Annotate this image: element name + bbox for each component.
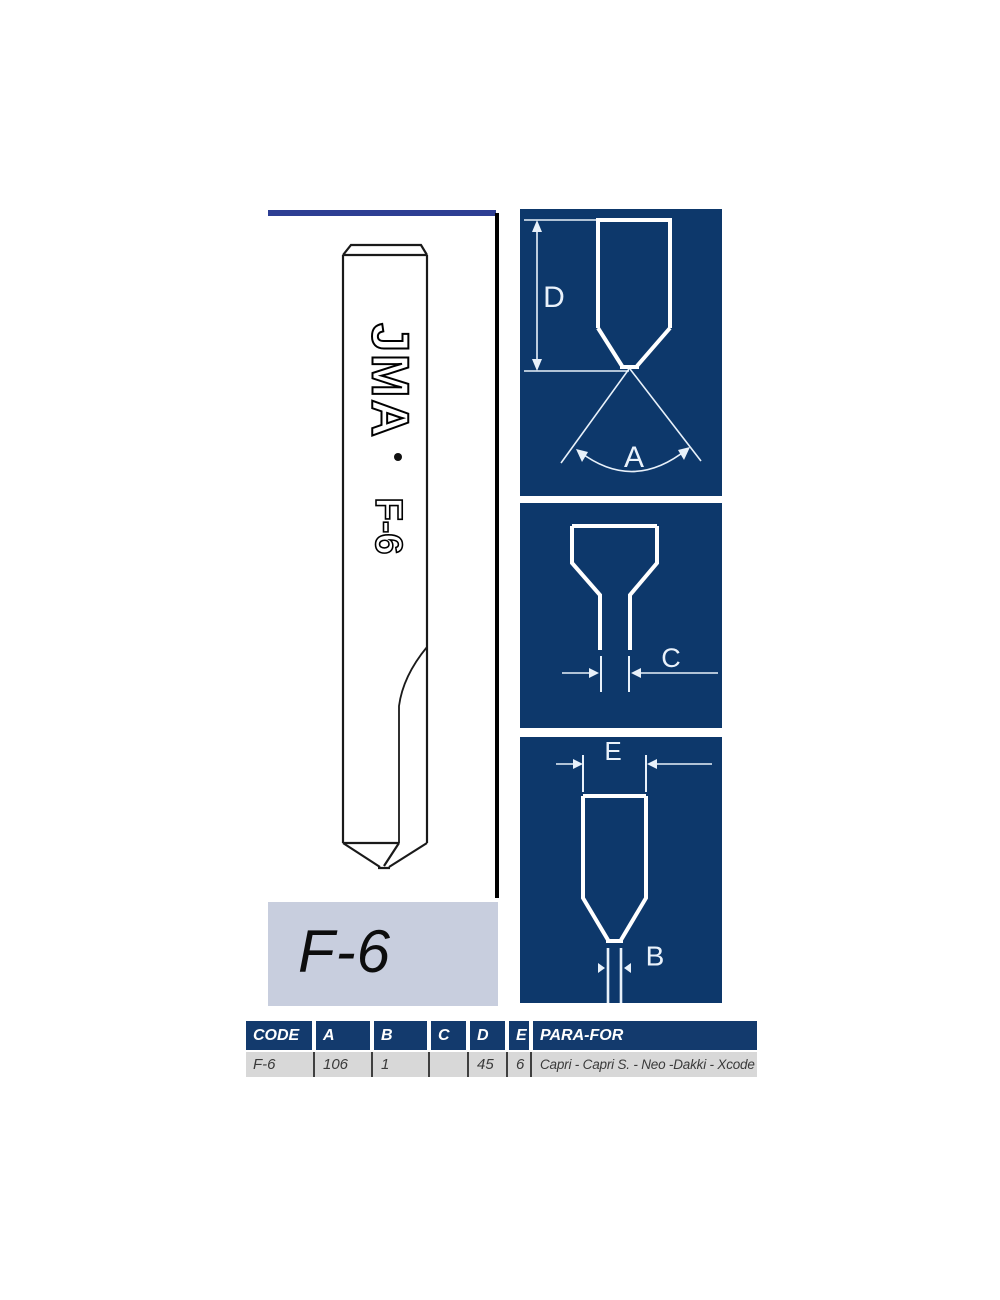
- cell-a: 106: [316, 1052, 370, 1077]
- cell-divider: [427, 1052, 431, 1077]
- diagram-panel-depth-angle: D A: [520, 209, 722, 496]
- cell-divider: [312, 1052, 316, 1077]
- header-c: C: [431, 1021, 466, 1050]
- c-dimension-ticks: [601, 656, 629, 692]
- dimension-label-a: A: [624, 441, 644, 474]
- width-c-diagram: C: [520, 503, 722, 728]
- cell-c: [431, 1052, 466, 1077]
- depth-dimension-lines: [524, 220, 629, 371]
- header-e: E: [509, 1021, 529, 1050]
- depth-angle-diagram: D A: [520, 209, 722, 496]
- header-a: A: [316, 1021, 370, 1050]
- spec-table-data-row: F-6 106 1 45 6 Capri - Capri S. - Neo -D…: [246, 1052, 757, 1077]
- c-arrowheads: [589, 668, 641, 678]
- registered-trademark-dot: [394, 453, 402, 461]
- model-plate: F-6: [268, 902, 498, 1006]
- cell-divider: [505, 1052, 509, 1077]
- cutter-front-shape: [572, 526, 657, 650]
- cell-code: F-6: [246, 1052, 312, 1077]
- cutter-model-text: F-6: [367, 498, 409, 555]
- header-para-for: PARA-FOR: [533, 1021, 757, 1050]
- dimension-label-e: E: [604, 737, 621, 766]
- diagram-panel-width-c: C: [520, 503, 722, 728]
- model-plate-label: F-6: [268, 902, 498, 1002]
- cutter-profile-shape: [598, 220, 670, 367]
- dimension-label-c: C: [661, 643, 681, 673]
- spec-table: CODE A B C D E PARA-FOR F-6 106 1 45 6: [246, 1021, 757, 1077]
- header-b: B: [374, 1021, 427, 1050]
- cell-divider: [466, 1052, 470, 1077]
- cell-para-for: Capri - Capri S. - Neo -Dakki - Xcode: [533, 1052, 757, 1077]
- cutter-brand-text: JMA: [360, 323, 418, 439]
- e-b-diagram: E B: [520, 737, 722, 1003]
- cell-e: 6: [509, 1052, 529, 1077]
- dimension-label-d: D: [543, 281, 565, 314]
- cell-divider: [370, 1052, 374, 1077]
- dimension-label-b: B: [646, 940, 665, 971]
- spec-table-header-row: CODE A B C D E PARA-FOR: [246, 1021, 757, 1050]
- header-code: CODE: [246, 1021, 312, 1050]
- diagram-panel-e-b: E B: [520, 737, 722, 1003]
- b-arrowheads: [598, 963, 631, 973]
- cutter-drawing: JMA F-6: [260, 210, 505, 910]
- product-datasheet: JMA F-6 D A: [0, 0, 1000, 1300]
- cutter-side-shape: [583, 796, 646, 941]
- cell-divider: [529, 1052, 533, 1077]
- cell-b: 1: [374, 1052, 427, 1077]
- cell-d: 45: [470, 1052, 505, 1077]
- header-d: D: [470, 1021, 505, 1050]
- b-tip-lines: [608, 948, 621, 1003]
